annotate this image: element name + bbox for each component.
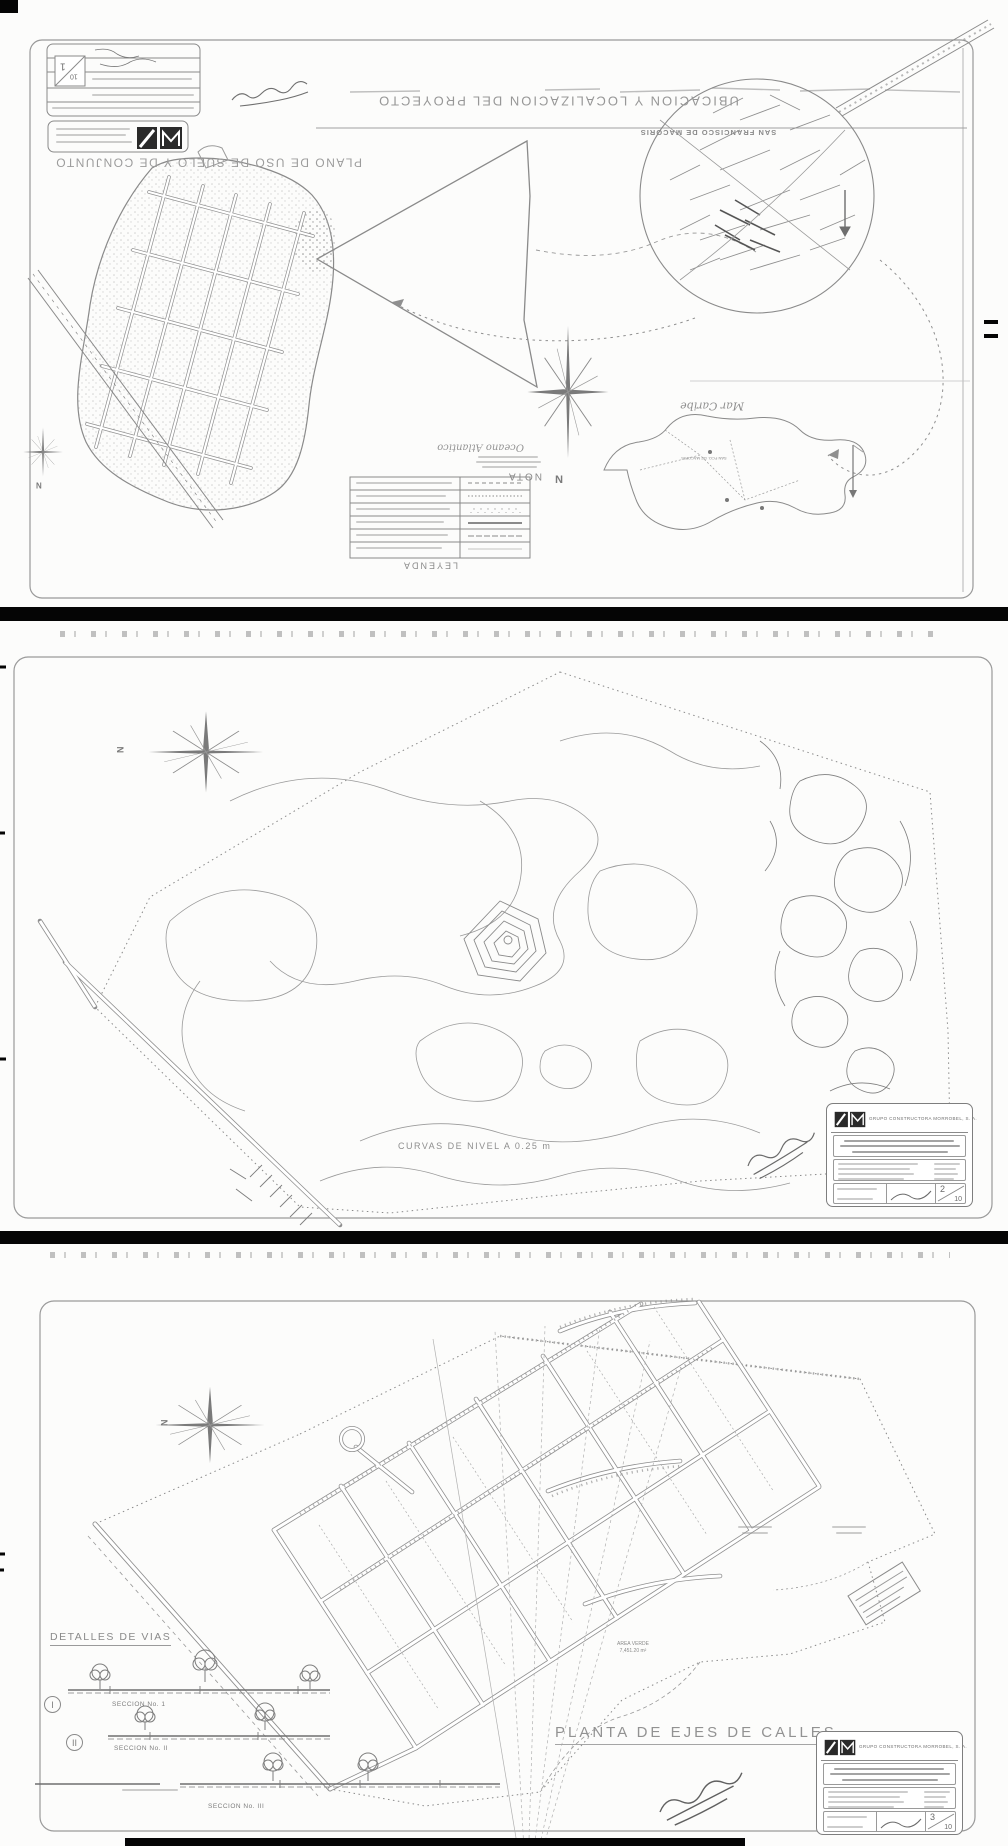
detail-circle-map (640, 79, 874, 313)
section2-label: SECCION No. II (114, 1746, 168, 1753)
hatch-marks (230, 1165, 312, 1225)
title-block-2: GRUPO CONSTRUCTORA MORROBEL, S. A. (826, 1103, 973, 1207)
site-boundary (95, 672, 950, 1213)
compass-n-label: N (115, 746, 124, 753)
sheet-1-drawing (0, 0, 1008, 607)
sheet2-number: 2 (940, 1184, 945, 1194)
dense-contours (760, 741, 917, 1093)
cm-logo-1 (137, 127, 182, 149)
area-label-line1: AREA VERDE (588, 1642, 678, 1647)
nota-label: NOTA (500, 470, 542, 481)
highway (836, 20, 994, 116)
sheet-number-box: 2 10 (935, 1184, 965, 1203)
handwritten-note (232, 82, 308, 106)
road-section-details (35, 1650, 500, 1788)
sheet2-caption: CURVAS DE NIVEL A 0.25 m (398, 1142, 551, 1151)
sheet1-plan-title: PLANO DE USO DE SUELO Y DE CONJUNTO (62, 156, 362, 169)
site-plan (78, 146, 337, 510)
north-compass-icon (149, 711, 263, 792)
sheet1-number: 1 (60, 60, 66, 71)
down-arrow-icon (840, 190, 850, 236)
sheet-2-topografia: CURVAS DE NIVEL A 0.25 m N GRUPO CONSTRU… (0, 621, 1008, 1231)
section3-label: SECCION No. III (208, 1804, 264, 1811)
access-road (40, 921, 340, 1225)
sheet1-total: 10 (70, 72, 78, 79)
sea-label: Mar Caribe (660, 400, 744, 412)
company-name: GRUPO CONSTRUCTORA MORROBEL, S. A. (859, 1744, 967, 1749)
sheet-3-ejes-calles: DETALLES DE VIAS I SECCION No. 1 II SECC… (0, 1244, 1008, 1846)
sheet-1-ubicacion: UBICACION Y LOCALIZACION DEL PROYECTO SA… (0, 0, 1008, 607)
section2-numeral-badge: II (66, 1734, 83, 1751)
contour-lines (166, 733, 790, 1191)
pointer-arrow (317, 141, 537, 387)
street-grid (274, 1299, 819, 1789)
scan-edge-artifact (125, 1838, 745, 1846)
compass-n-label: N (555, 472, 563, 484)
signature (656, 1772, 751, 1828)
scan-separator-bar (0, 607, 1008, 621)
section1-label: SECCION No. 1 (112, 1702, 165, 1709)
compass-n-label: N (159, 1419, 168, 1426)
small-north-compass-icon (23, 428, 63, 477)
cm-logo (834, 1110, 866, 1129)
small-compass-n-label: N (36, 480, 42, 488)
approval-stamp (848, 1562, 920, 1625)
sheet3-number: 3 (930, 1812, 935, 1822)
sheet1-main-title: UBICACION Y LOCALIZACION DEL PROYECTO (368, 94, 748, 108)
sheet-number-box: 3 10 (925, 1812, 955, 1831)
sheet1-city-label: SAN FRANCISCO DE MACORIS (628, 128, 788, 136)
details-title: DETALLES DE VIAS (50, 1632, 171, 1646)
title-block-3: GRUPO CONSTRUCTORA MORROBEL, S. A. (816, 1731, 963, 1835)
scan-edge-artifact (0, 0, 18, 13)
sheet3-main-title: PLANTA DE EJES DE CALLES (555, 1725, 837, 1745)
area-label-line2: 7,451.20 m² (588, 1649, 678, 1654)
leyenda-label: LEYENDA (396, 560, 458, 569)
handwritten-note (745, 1130, 823, 1181)
north-compass-icon (155, 1387, 264, 1464)
north-compass-icon (527, 326, 608, 458)
ocean-label: Oceano Atlantico (428, 441, 524, 452)
sheet3-total: 10 (944, 1824, 952, 1831)
main-avenue (88, 1524, 330, 1796)
sheet2-total: 10 (954, 1196, 962, 1203)
section1-numeral-badge: I (44, 1696, 61, 1713)
map-city-label: SAN FCO. DE MACORIS (676, 456, 732, 460)
scanned-plan-set: UBICACION Y LOCALIZACION DEL PROYECTO SA… (0, 0, 1008, 1846)
country-map (604, 415, 866, 530)
cm-logo (824, 1738, 856, 1757)
legend-table (350, 477, 530, 558)
hill-contours (464, 901, 546, 981)
tree-icon (90, 1650, 378, 1781)
company-name: GRUPO CONSTRUCTORA MORROBEL, S. A. (869, 1116, 977, 1121)
scan-separator-bar (0, 1231, 1008, 1244)
